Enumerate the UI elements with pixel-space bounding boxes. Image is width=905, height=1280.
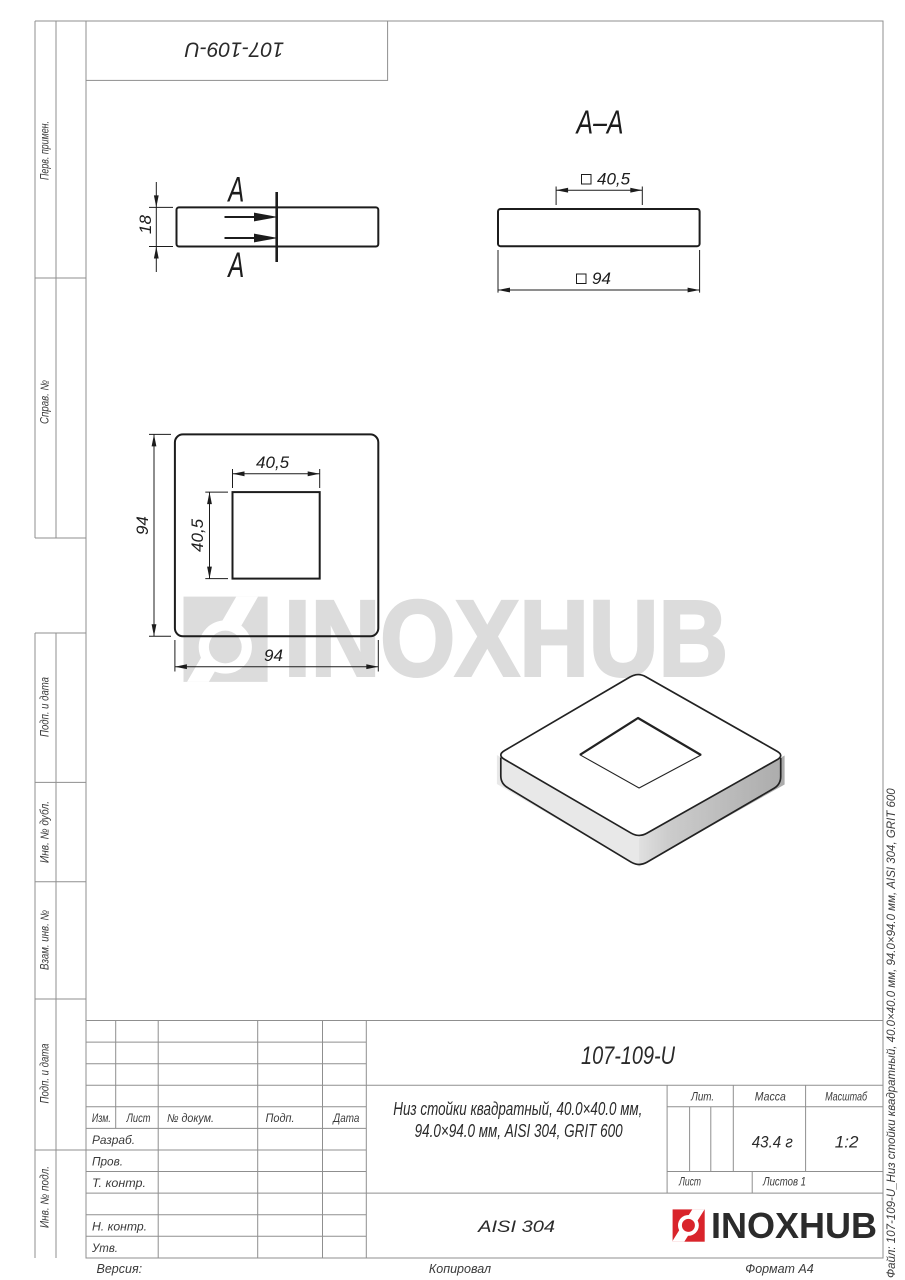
svg-text:Версия:: Версия: bbox=[97, 1262, 143, 1276]
svg-text:Дата: Дата bbox=[332, 1113, 360, 1125]
svg-text:Взам. инв. №: Взам. инв. № bbox=[40, 910, 52, 970]
svg-text:94: 94 bbox=[592, 269, 611, 288]
svg-text:Перв. примен.: Перв. примен. bbox=[40, 121, 52, 180]
svg-text:Утв.: Утв. bbox=[91, 1243, 118, 1255]
svg-text:Н. контр.: Н. контр. bbox=[92, 1222, 147, 1234]
svg-text:94.0×94.0 мм, AISI 304, GRIT 6: 94.0×94.0 мм, AISI 304, GRIT 600 bbox=[415, 1120, 624, 1141]
svg-text:A: A bbox=[227, 171, 244, 210]
svg-text:Масштаб: Масштаб bbox=[825, 1092, 867, 1104]
svg-text:Листов 1: Листов 1 bbox=[762, 1177, 806, 1189]
svg-text:Изм.: Изм. bbox=[92, 1113, 111, 1125]
svg-text:43.4 г: 43.4 г bbox=[752, 1133, 793, 1152]
svg-text:INOXHUB: INOXHUB bbox=[711, 1205, 877, 1246]
svg-text:INOXHUB: INOXHUB bbox=[284, 578, 728, 699]
svg-text:107-109-U: 107-109-U bbox=[184, 38, 284, 61]
svg-text:94: 94 bbox=[264, 646, 283, 665]
svg-text:Низ стойки квадратный, 40.0×40: Низ стойки квадратный, 40.0×40.0 мм, bbox=[393, 1098, 642, 1119]
svg-text:94: 94 bbox=[133, 516, 152, 535]
svg-text:Справ. №: Справ. № bbox=[40, 380, 52, 424]
svg-text:A: A bbox=[227, 246, 244, 285]
svg-text:Инв. № подл.: Инв. № подл. bbox=[40, 1166, 52, 1228]
svg-text:Инв. № дубл.: Инв. № дубл. bbox=[40, 801, 52, 863]
svg-text:Лит.: Лит. bbox=[690, 1092, 714, 1104]
svg-text:Лист: Лист bbox=[126, 1113, 151, 1125]
svg-text:Масса: Масса bbox=[755, 1092, 786, 1104]
svg-text:Разраб.: Разраб. bbox=[92, 1135, 135, 1147]
svg-text:1:2: 1:2 bbox=[835, 1133, 859, 1152]
svg-text:40,5: 40,5 bbox=[597, 170, 631, 189]
svg-text:Формат А4: Формат А4 bbox=[745, 1262, 813, 1276]
svg-text:Лист: Лист bbox=[678, 1177, 701, 1189]
svg-text:AISI 304: AISI 304 bbox=[477, 1217, 555, 1236]
svg-text:Т. контр.: Т. контр. bbox=[92, 1178, 146, 1190]
svg-text:40,5: 40,5 bbox=[188, 518, 207, 552]
svg-text:A–A: A–A bbox=[575, 104, 624, 141]
svg-text:Пров.: Пров. bbox=[92, 1157, 123, 1169]
svg-text:Файл: 107-109-U_Низ стойки ква: Файл: 107-109-U_Низ стойки квадратный, 4… bbox=[886, 788, 898, 1278]
svg-text:Подп. и дата: Подп. и дата bbox=[40, 677, 52, 737]
svg-text:107-109-U: 107-109-U bbox=[581, 1042, 676, 1070]
svg-text:Подп.: Подп. bbox=[266, 1113, 295, 1125]
svg-text:Копировал: Копировал bbox=[429, 1262, 491, 1276]
svg-text:№ докум.: № докум. bbox=[167, 1113, 214, 1125]
svg-text:Подп. и дата: Подп. и дата bbox=[40, 1044, 52, 1104]
svg-text:40,5: 40,5 bbox=[256, 453, 290, 472]
svg-text:18: 18 bbox=[136, 215, 155, 234]
